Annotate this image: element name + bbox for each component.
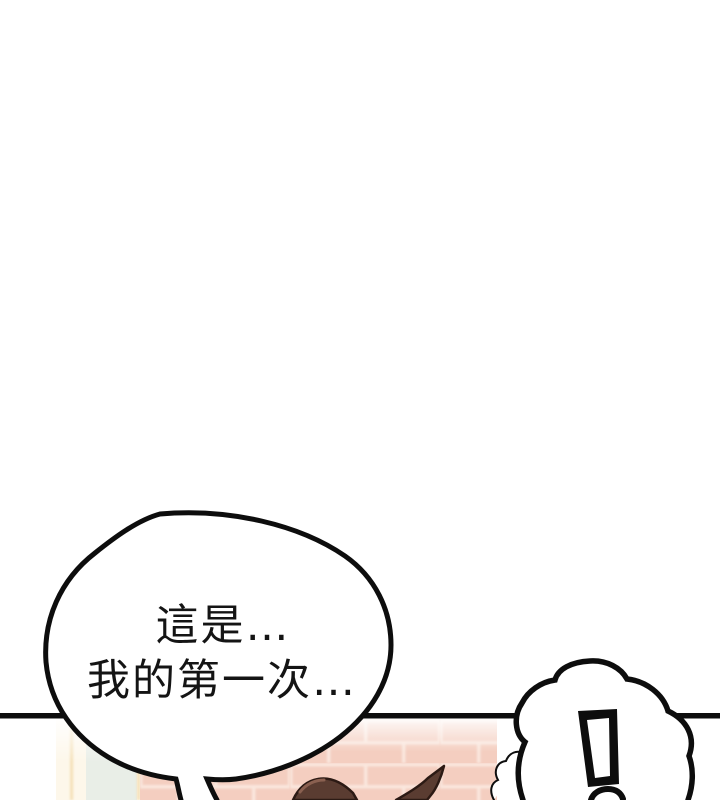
shock-bubble	[516, 661, 692, 800]
comic-page: 這是… 我的第一次…	[0, 0, 720, 800]
speech-bubble-text-line2: 我的第一次…	[87, 660, 357, 703]
speech-bubble-text-line1: 這是…	[156, 605, 291, 648]
